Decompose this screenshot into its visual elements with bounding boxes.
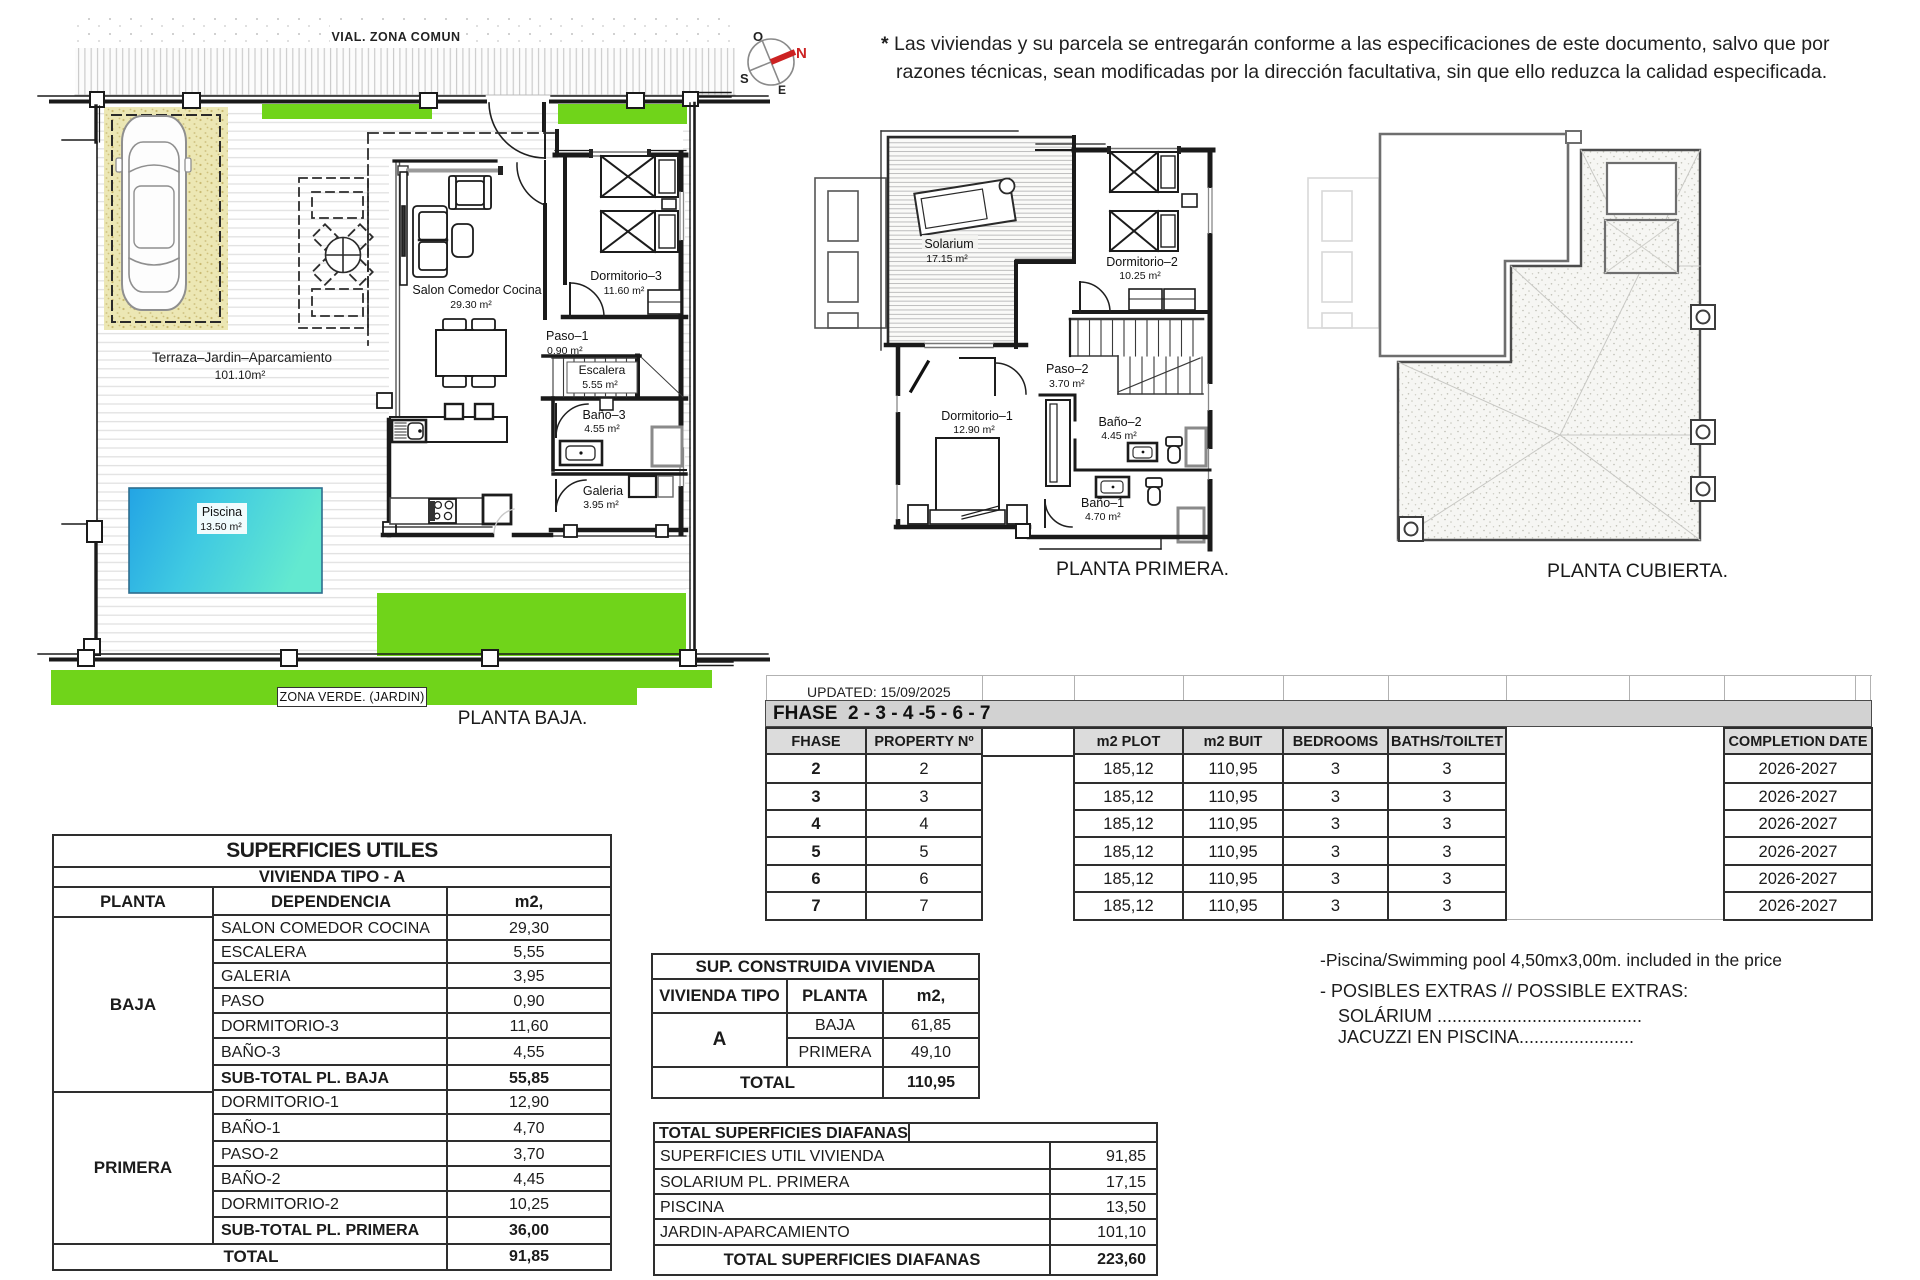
svg-text:10.25 m²: 10.25 m² xyxy=(1119,270,1161,282)
svg-text:17.15 m²: 17.15 m² xyxy=(926,253,968,265)
svg-text:29.30 m²: 29.30 m² xyxy=(450,299,492,311)
svg-text:Piscina: Piscina xyxy=(202,505,242,519)
svg-text:13.50 m²: 13.50 m² xyxy=(200,521,242,533)
svg-text:3.70 m²: 3.70 m² xyxy=(1049,378,1085,390)
svg-text:Dormitorio–3: Dormitorio–3 xyxy=(590,269,662,283)
svg-text:Baño–3: Baño–3 xyxy=(582,408,625,422)
svg-text:Baño–1: Baño–1 xyxy=(1081,496,1124,510)
svg-text:Dormitorio–1: Dormitorio–1 xyxy=(941,409,1013,423)
svg-text:3.95 m²: 3.95 m² xyxy=(583,499,619,511)
svg-text:S: S xyxy=(740,71,749,86)
svg-text:5.55 m²: 5.55 m² xyxy=(582,379,618,391)
svg-text:Terraza–Jardin–Aparcamiento: Terraza–Jardin–Aparcamiento xyxy=(152,350,332,365)
svg-text:101.10m²: 101.10m² xyxy=(215,368,266,382)
svg-text:O: O xyxy=(753,29,763,44)
svg-text:Galeria: Galeria xyxy=(583,484,623,498)
svg-text:Baño–2: Baño–2 xyxy=(1098,415,1141,429)
svg-text:Paso–1: Paso–1 xyxy=(546,329,588,343)
svg-text:Salon Comedor Cocina: Salon Comedor Cocina xyxy=(412,283,541,297)
svg-text:Escalera: Escalera xyxy=(579,363,626,377)
svg-text:E: E xyxy=(778,83,786,97)
svg-text:Paso–2: Paso–2 xyxy=(1046,362,1088,376)
svg-text:11.60 m²: 11.60 m² xyxy=(604,285,645,297)
svg-text:VIAL. ZONA COMUN: VIAL. ZONA COMUN xyxy=(331,30,460,44)
svg-text:4.45 m²: 4.45 m² xyxy=(1101,430,1137,442)
svg-text:4.55 m²: 4.55 m² xyxy=(584,423,620,435)
svg-text:12.90 m²: 12.90 m² xyxy=(953,424,995,436)
svg-text:4.70 m²: 4.70 m² xyxy=(1085,511,1121,523)
svg-text:Dormitorio–2: Dormitorio–2 xyxy=(1106,255,1178,269)
svg-text:0.90 m²: 0.90 m² xyxy=(547,345,583,357)
svg-text:Solarium: Solarium xyxy=(924,237,973,251)
svg-text:N: N xyxy=(796,45,807,62)
